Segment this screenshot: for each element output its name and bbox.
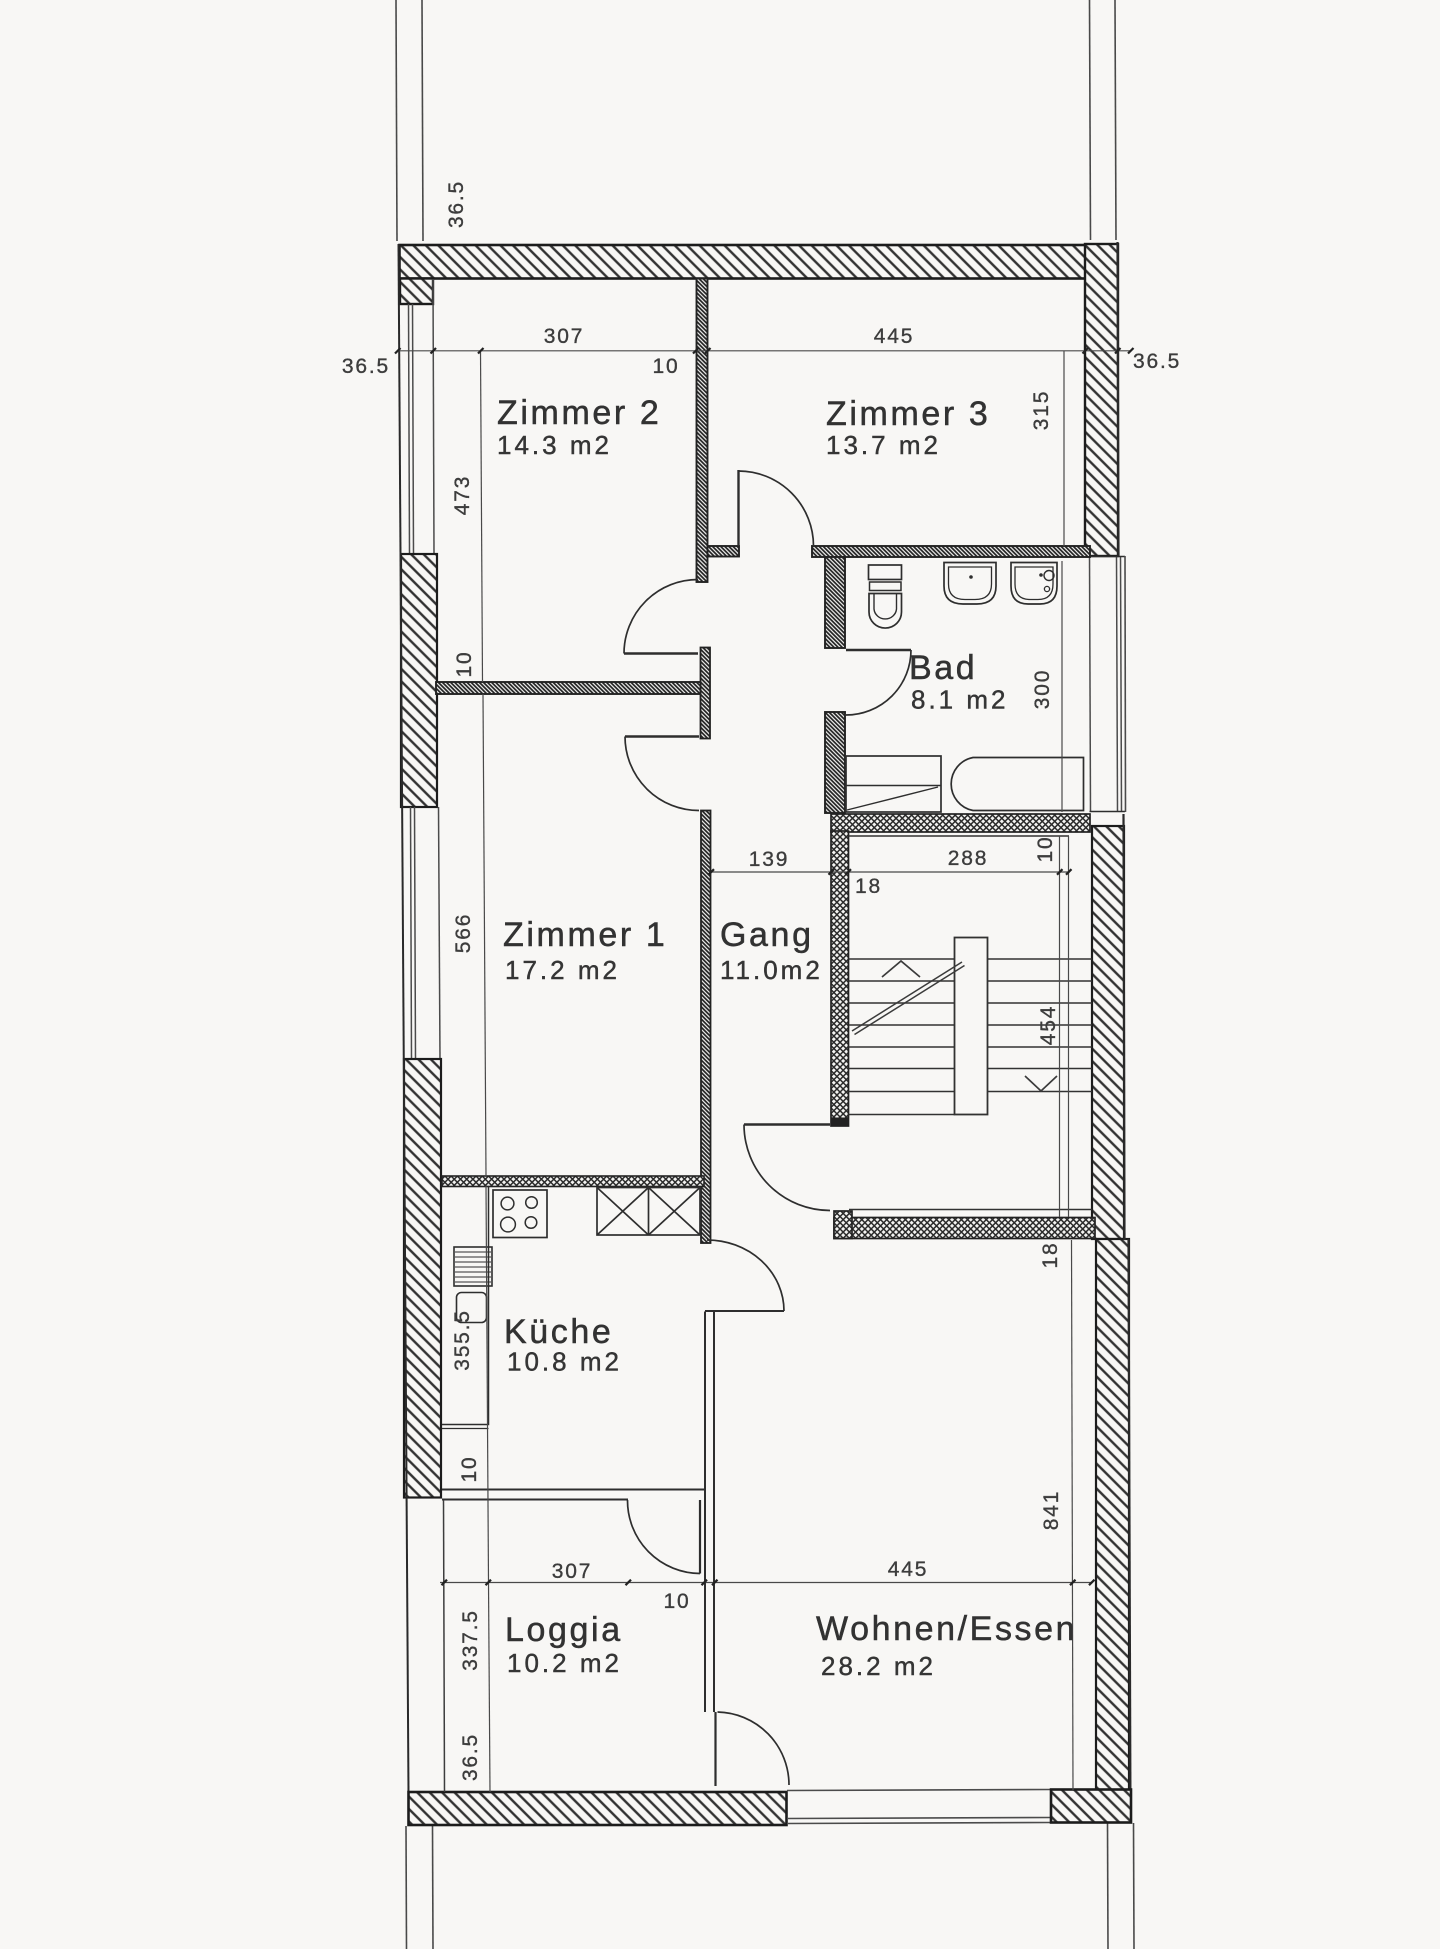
svg-text:8.1 m2: 8.1 m2 <box>911 685 1009 715</box>
svg-text:307: 307 <box>544 325 584 348</box>
svg-text:10: 10 <box>653 355 680 378</box>
svg-text:36.5: 36.5 <box>459 1733 482 1781</box>
svg-text:307: 307 <box>552 1560 592 1583</box>
svg-text:315: 315 <box>1030 390 1053 430</box>
svg-text:14.3 m2: 14.3 m2 <box>497 430 612 460</box>
svg-text:18: 18 <box>855 875 882 898</box>
svg-text:11.0m2: 11.0m2 <box>720 955 823 985</box>
svg-text:10: 10 <box>1034 836 1057 863</box>
svg-text:10: 10 <box>453 651 476 678</box>
svg-text:Zimmer 3: Zimmer 3 <box>826 395 990 433</box>
svg-text:10.8 m2: 10.8 m2 <box>507 1347 622 1377</box>
svg-text:13.7 m2: 13.7 m2 <box>826 430 941 460</box>
svg-text:288: 288 <box>948 847 988 870</box>
svg-text:10: 10 <box>664 1590 691 1613</box>
svg-text:Zimmer 2: Zimmer 2 <box>497 394 661 432</box>
svg-text:Küche: Küche <box>504 1313 613 1351</box>
svg-text:Gang: Gang <box>720 916 814 954</box>
svg-text:10: 10 <box>458 1456 481 1483</box>
svg-text:Wohnen/Essen: Wohnen/Essen <box>816 1610 1077 1648</box>
svg-text:28.2 m2: 28.2 m2 <box>821 1651 936 1681</box>
svg-text:337.5: 337.5 <box>459 1609 482 1671</box>
svg-text:18: 18 <box>1039 1242 1062 1269</box>
svg-text:36.5: 36.5 <box>1133 350 1181 373</box>
svg-text:445: 445 <box>888 1558 928 1581</box>
svg-text:454: 454 <box>1037 1005 1060 1045</box>
svg-text:36.5: 36.5 <box>342 355 390 378</box>
svg-text:473: 473 <box>451 475 474 515</box>
svg-text:17.2 m2: 17.2 m2 <box>505 955 620 985</box>
svg-text:355.5: 355.5 <box>451 1309 474 1371</box>
svg-text:Bad: Bad <box>909 649 977 687</box>
svg-text:36.5: 36.5 <box>445 180 468 228</box>
svg-text:841: 841 <box>1040 1490 1063 1530</box>
svg-text:Loggia: Loggia <box>505 1611 623 1649</box>
svg-text:300: 300 <box>1031 669 1054 709</box>
svg-text:445: 445 <box>874 325 914 348</box>
svg-text:139: 139 <box>749 848 789 871</box>
svg-text:566: 566 <box>452 913 475 953</box>
svg-text:Zimmer 1: Zimmer 1 <box>503 916 667 954</box>
svg-text:10.2 m2: 10.2 m2 <box>507 1648 622 1678</box>
